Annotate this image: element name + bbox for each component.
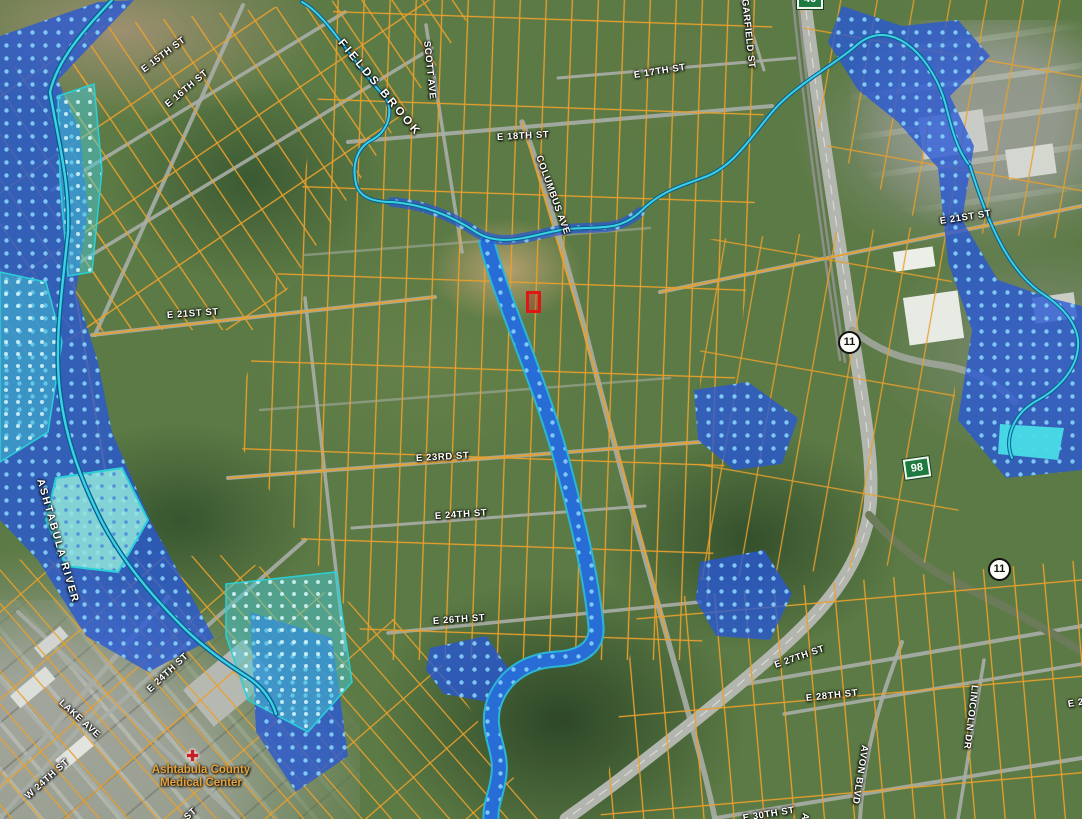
map-canvas[interactable]: FIELDS BROOK ASHTABULA RIVER E 15TH ST E… — [0, 0, 1082, 819]
poi-label-medical-center: Ashtabula County Medical Center — [116, 764, 286, 790]
poi-medical-line2: Medical Center — [116, 777, 286, 790]
route-shield-11-lower: 11 — [988, 558, 1011, 581]
route-shield-top-partial: 46 — [797, 0, 823, 9]
poi-medical-line1: Ashtabula County — [116, 764, 286, 777]
map-overlay-svg — [0, 0, 1082, 819]
medical-cross-icon: ✚ — [185, 749, 200, 764]
route-shield-98: 98 — [903, 456, 932, 479]
route-shield-11-upper: 11 — [838, 331, 861, 354]
selected-parcel-highlight[interactable] — [526, 291, 541, 313]
